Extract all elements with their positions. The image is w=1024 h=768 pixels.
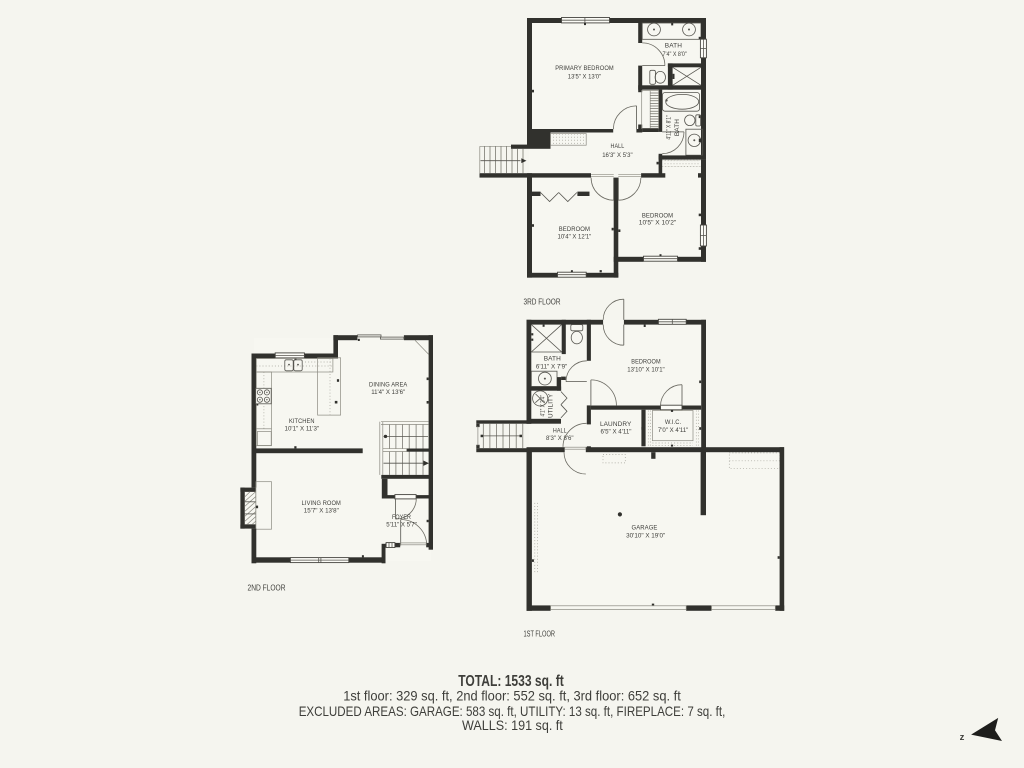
svg-text:6'5" X 4'11": 6'5" X 4'11" (601, 429, 632, 436)
svg-text:z: z (960, 732, 965, 743)
svg-text:BATH: BATH (544, 356, 561, 363)
svg-text:LIVING ROOM: LIVING ROOM (302, 500, 341, 507)
svg-text:W.I.C.: W.I.C. (665, 419, 681, 426)
svg-text:2ND FLOOR: 2ND FLOOR (248, 583, 286, 592)
svg-text:3RD FLOOR: 3RD FLOOR (524, 298, 561, 307)
svg-text:30'10" X 19'0": 30'10" X 19'0" (626, 533, 665, 540)
svg-text:1ST FLOOR: 1ST FLOOR (524, 629, 556, 638)
svg-text:BATH: BATH (674, 119, 681, 136)
svg-text:15'7" X 13'8": 15'7" X 13'8" (304, 508, 339, 515)
svg-text:6'11" X 7'9": 6'11" X 7'9" (536, 363, 567, 370)
svg-text:8'3" X 8'6": 8'3" X 8'6" (546, 435, 574, 442)
svg-text:13'10" X 10'1": 13'10" X 10'1" (627, 367, 664, 374)
svg-text:10'4" X 12'1": 10'4" X 12'1" (558, 233, 592, 240)
svg-text:4'11" X 8'1": 4'11" X 8'1" (665, 115, 672, 139)
svg-text:WALLS: 191 sq. ft: WALLS: 191 sq. ft (462, 717, 563, 733)
svg-text:BEDROOM: BEDROOM (631, 358, 660, 365)
svg-text:16'3" X 5'3": 16'3" X 5'3" (602, 152, 632, 159)
svg-text:11'4" X 13'6": 11'4" X 13'6" (371, 389, 405, 396)
svg-text:7'0" X 4'11": 7'0" X 4'11" (658, 427, 688, 434)
svg-text:7'4" X 8'0": 7'4" X 8'0" (663, 51, 687, 58)
svg-text:4'1" X 3'4": 4'1" X 3'4" (539, 395, 546, 417)
svg-text:BEDROOM: BEDROOM (559, 226, 590, 233)
svg-text:FOYER: FOYER (392, 514, 411, 521)
svg-text:5'11" X 5'7": 5'11" X 5'7" (386, 521, 417, 528)
svg-text:10'1" X 11'3": 10'1" X 11'3" (285, 426, 320, 433)
svg-text:BATH: BATH (665, 42, 682, 49)
svg-text:HALL: HALL (611, 143, 625, 150)
svg-text:KITCHEN: KITCHEN (289, 418, 315, 425)
svg-text:PRIMARY BEDROOM: PRIMARY BEDROOM (555, 65, 614, 72)
svg-text:LAUNDRY: LAUNDRY (600, 421, 632, 428)
svg-text:HALL: HALL (553, 428, 567, 435)
svg-text:10'5" X 10'2": 10'5" X 10'2" (639, 220, 677, 227)
svg-text:DINING AREA: DINING AREA (369, 381, 408, 388)
svg-text:13'5" X 13'0": 13'5" X 13'0" (568, 74, 601, 81)
svg-text:UTILITY: UTILITY (547, 393, 554, 418)
svg-text:1st floor: 329 sq. ft, 2nd flo: 1st floor: 329 sq. ft, 2nd floor: 552 sq… (343, 688, 681, 704)
svg-text:BEDROOM: BEDROOM (642, 212, 673, 219)
svg-text:GARAGE: GARAGE (632, 525, 658, 532)
